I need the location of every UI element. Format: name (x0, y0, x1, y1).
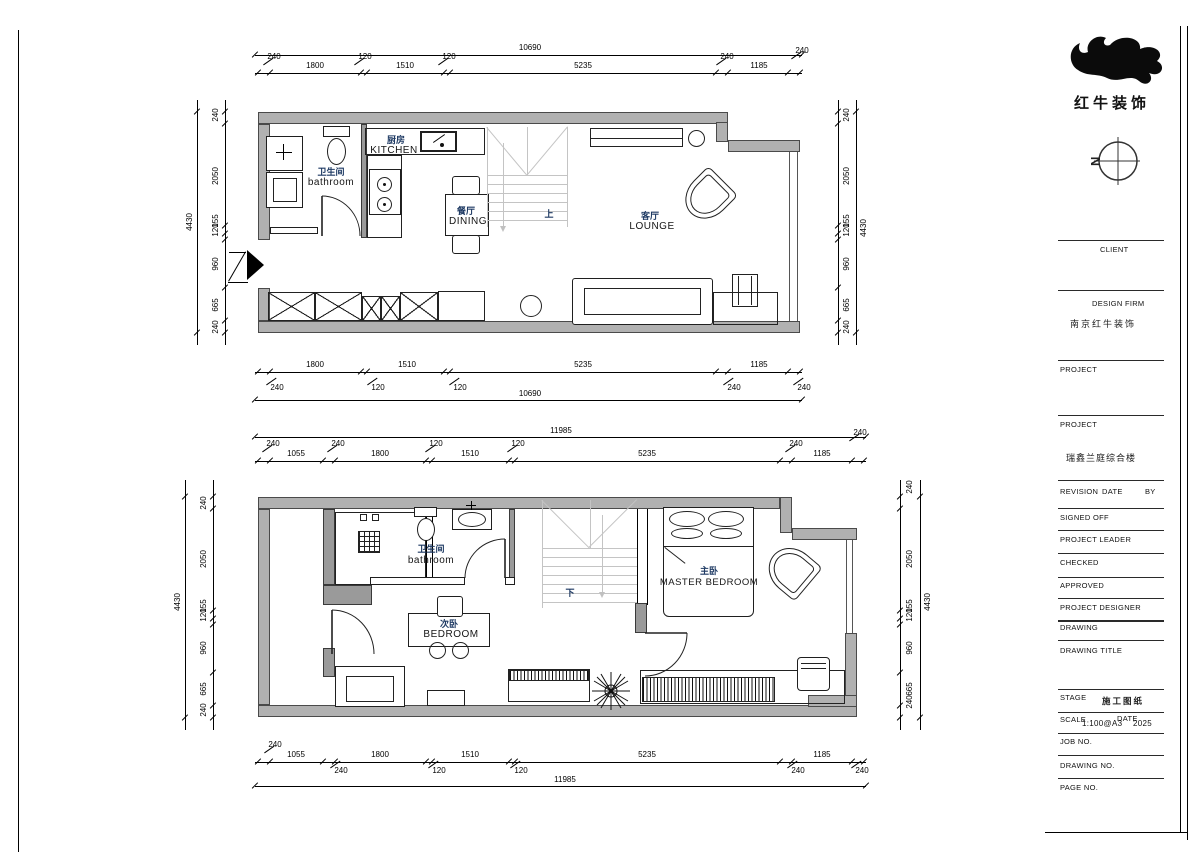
dim-line (900, 480, 901, 730)
window-line (852, 540, 853, 633)
faucet-icon (276, 152, 292, 153)
dim-label: 10690 (519, 44, 541, 52)
cabinet-unit (381, 296, 400, 321)
divider (1058, 553, 1164, 554)
divider (1058, 530, 1164, 531)
by-label: BY (1145, 488, 1156, 496)
drawing-title-label: DRAWING TITLE (1060, 647, 1122, 655)
dim-label: 960 (200, 641, 208, 654)
wall-line (637, 509, 638, 605)
dim-label: 1185 (813, 450, 830, 458)
dim-label: 120 (371, 384, 384, 392)
dim-label: 665 (200, 682, 208, 695)
divider (1058, 480, 1164, 481)
project-designer-label: PROJECT DESIGNER (1060, 604, 1141, 612)
dim-label: 120 (442, 53, 455, 61)
blanket-line (664, 546, 753, 547)
job-no-label: JOB NO. (1060, 738, 1092, 746)
drawing-label: DRAWING (1060, 624, 1098, 632)
project-leader-label: PROJECT LEADER (1060, 536, 1131, 544)
stairs-treads (542, 548, 637, 608)
shelf-box (372, 514, 379, 521)
wardrobe-unit (268, 292, 315, 321)
window-line (846, 540, 847, 633)
divider (1058, 733, 1164, 734)
dim-label: 1800 (371, 450, 389, 458)
wall-stub (370, 577, 465, 585)
washing-machine-drum (273, 178, 297, 202)
dim-label: 240 (331, 440, 344, 448)
wardrobe-unit (315, 292, 362, 321)
dim-label: 240 (266, 440, 279, 448)
door-arc (330, 608, 374, 656)
toilet (414, 507, 437, 517)
stool (732, 274, 758, 307)
room-label-master-en: MASTER BEDROOM (660, 578, 758, 588)
toilet (323, 126, 350, 137)
dim-label: 240 (267, 53, 280, 61)
dim-label: 1510 (396, 62, 414, 70)
pillow (671, 528, 703, 539)
stairs-arrow-head (599, 592, 605, 598)
toilet-bowl (327, 138, 346, 165)
dim-tick (863, 782, 869, 788)
vanity (266, 136, 303, 171)
dim-label: 240 (268, 741, 281, 749)
dim-line (255, 437, 866, 438)
wall-block (323, 585, 372, 605)
page-no-label: PAGE NO. (1060, 784, 1098, 792)
project-label: PROJECT (1060, 366, 1097, 374)
dim-label: 1800 (306, 361, 324, 369)
divider (1058, 240, 1164, 241)
room-label-bathroom-en: bathroom (408, 556, 454, 566)
toilet-bowl (417, 518, 435, 541)
design-firm-label: DESIGN FIRM (1092, 300, 1144, 308)
stairs-diagonal (486, 127, 527, 176)
room-label-bathroom-cn: 卫生间 (317, 168, 344, 177)
wall-line (647, 509, 648, 605)
dim-label: 4430 (186, 213, 194, 231)
dim-label: 2050 (843, 167, 851, 185)
dim-label: 960 (843, 257, 851, 270)
date-label: DATE (1102, 488, 1123, 496)
door-arc (463, 537, 507, 580)
dim-tick (861, 457, 867, 463)
dim-line (255, 372, 802, 373)
room-label-lounge-cn: 客厅 (641, 212, 659, 221)
dim-label: 2050 (906, 550, 914, 568)
signed-off-label: SIGNED OFF (1060, 514, 1109, 522)
dim-label: 4430 (924, 593, 932, 611)
wall (716, 122, 728, 142)
stairs-label-down: 下 (565, 589, 574, 598)
revision-label: REVISION (1060, 488, 1098, 496)
kitchen-sink (420, 131, 457, 152)
divider (1058, 689, 1164, 690)
dim-label: 1185 (750, 62, 767, 70)
burner-dot (383, 203, 386, 206)
dim-label: 120 (358, 53, 371, 61)
stool-round (452, 642, 469, 659)
round-stool (688, 130, 705, 147)
dim-label: 120 (453, 384, 466, 392)
dim-label: 240 (906, 480, 914, 493)
stairs-treads (487, 175, 568, 228)
dim-label: 2050 (212, 167, 220, 185)
window-line (797, 152, 798, 321)
wall (792, 528, 857, 540)
washbasin-bowl (458, 512, 486, 527)
divider (1058, 415, 1164, 416)
pillow (669, 511, 705, 527)
dim-label: 240 (334, 767, 347, 775)
door-arc (320, 194, 360, 237)
wall-partition (509, 509, 515, 585)
drawing-sheet: 卫生间 bathroom 厨房 KITCHEN 餐厅 DINING 上 (0, 0, 1200, 852)
titleblock-border-inner (1180, 26, 1181, 832)
dim-label: 240 (791, 767, 804, 775)
pillow (708, 511, 744, 527)
dim-label: 1185 (813, 751, 830, 759)
north-compass-icon: N (1086, 134, 1144, 188)
dim-label: 11985 (554, 776, 576, 784)
plant-icon (590, 670, 632, 712)
dim-label: 5235 (574, 62, 592, 70)
sofa-seat (584, 288, 701, 315)
divider (1058, 577, 1164, 578)
dim-label: 240 (906, 695, 914, 708)
dim-label: 120 (429, 440, 442, 448)
dim-line (856, 100, 857, 345)
dim-label: 960 (212, 257, 220, 270)
stairs-arrow-head (500, 226, 506, 232)
window-line (789, 152, 790, 321)
stage-label: STAGE (1060, 694, 1086, 702)
round-table (520, 295, 542, 317)
checked-label: CHECKED (1060, 559, 1099, 567)
cabinet (438, 291, 485, 321)
dim-tick (797, 368, 803, 374)
wall (258, 509, 270, 705)
room-label-dining-en: DINING (449, 217, 487, 227)
stage-value: 施工图纸 (1102, 697, 1144, 706)
wardrobe-unit (400, 292, 438, 321)
dim-label: 240 (270, 384, 283, 392)
stairs-arrow (503, 143, 504, 227)
wall (258, 112, 728, 124)
dim-label: 1510 (461, 751, 479, 759)
sheet-border-right (1187, 26, 1188, 840)
sheet-border-left (18, 30, 19, 852)
wall (780, 497, 792, 533)
wall (728, 140, 800, 152)
divider (1058, 290, 1164, 291)
project-label: PROJECT (1060, 421, 1097, 429)
dim-label: 960 (906, 641, 914, 654)
dim-label: 10690 (519, 390, 541, 398)
dim-tick (861, 758, 867, 764)
dim-label: 4430 (860, 219, 868, 237)
dim-label: 240 (797, 384, 810, 392)
armchair-seat (346, 676, 394, 702)
room-label-bathroom-en: bathroom (308, 178, 354, 188)
dining-chair (452, 176, 480, 195)
stairs-center-line (590, 500, 591, 548)
approved-label: APPROVED (1060, 582, 1104, 590)
dim-label: 665 (906, 682, 914, 695)
room-label-bedroom-cn: 次卧 (440, 620, 458, 629)
dim-label: 240 (212, 108, 220, 121)
wall-stub (270, 227, 318, 234)
dim-label: 4430 (174, 593, 182, 611)
pillow (710, 528, 742, 539)
dim-line (213, 480, 214, 730)
divider (1058, 640, 1164, 641)
divider (1058, 360, 1164, 361)
stairs-center-line (527, 127, 528, 175)
entry-symbol (228, 251, 246, 281)
stool-line (738, 276, 739, 305)
dim-label: 1510 (461, 450, 479, 458)
wall-partition (323, 509, 335, 585)
room-label-kitchen-cn: 厨房 (387, 136, 405, 145)
divider (1058, 598, 1164, 599)
entry-arrow-icon (247, 250, 264, 280)
divider (1058, 620, 1164, 622)
dim-label: 1510 (398, 361, 416, 369)
dim-label: 240 (843, 108, 851, 121)
armchair (759, 538, 823, 601)
svg-text:N: N (1088, 157, 1103, 166)
stairs-label-up: 上 (544, 210, 553, 219)
client-label: CLIENT (1100, 246, 1128, 254)
chair-back-line (801, 663, 826, 664)
dim-line (255, 461, 866, 462)
titleblock-border-bottom (1045, 832, 1187, 833)
company-logo-icon (1064, 30, 1164, 90)
dim-line (185, 480, 186, 730)
room-label-bathroom-cn: 卫生间 (417, 545, 444, 554)
dim-label: 2050 (200, 550, 208, 568)
dim-label: 240 (200, 703, 208, 716)
laundry-room-outline (335, 512, 426, 585)
dim-label: 240 (789, 440, 802, 448)
dim-label: 120 (906, 608, 914, 621)
desk-chair (437, 596, 463, 617)
dim-label: 665 (843, 298, 851, 311)
dim-label: 1055 (287, 751, 305, 759)
dim-line (255, 73, 802, 74)
entry-symbol (228, 282, 248, 283)
wall-notch (427, 690, 465, 706)
dim-tick (797, 69, 803, 75)
tv-cabinet-line (590, 138, 683, 139)
armchair (676, 166, 738, 228)
bench-keys (509, 670, 589, 681)
dim-label: 1055 (287, 450, 305, 458)
dim-label: 240 (855, 767, 868, 775)
room-label-lounge-en: LOUNGE (629, 222, 674, 232)
dining-chair (452, 235, 480, 254)
dim-label: 120 (514, 767, 527, 775)
sink-drain (440, 143, 444, 147)
dim-label: 240 (843, 320, 851, 333)
dim-line (255, 400, 802, 401)
stool-line (751, 276, 752, 305)
radiator-cabinet (642, 677, 775, 702)
faucet-icon (283, 144, 284, 160)
stairs-diagonal (527, 126, 568, 175)
dim-line (255, 762, 866, 763)
dim-line (255, 786, 866, 787)
dim-label: 5235 (638, 450, 656, 458)
project-value: 瑞鑫兰庭综合楼 (1066, 454, 1136, 463)
dim-label: 1800 (306, 62, 324, 70)
dim-line (920, 480, 921, 730)
room-label-master-cn: 主卧 (700, 567, 718, 576)
dim-label: 240 (212, 320, 220, 333)
divider (1058, 778, 1164, 779)
divider (1058, 508, 1164, 509)
room-label-bedroom-en: BEDROOM (423, 630, 478, 640)
dim-label: 5235 (574, 361, 592, 369)
dim-label: 665 (212, 298, 220, 311)
cabinet-unit (362, 296, 381, 321)
room-label-dining-cn: 餐厅 (457, 207, 475, 216)
faucet-icon (471, 501, 472, 510)
dim-label: 120 (511, 440, 524, 448)
dim-label: 11985 (550, 427, 572, 435)
shelf-box (360, 514, 367, 521)
dim-label: 240 (200, 496, 208, 509)
dim-label: 1185 (750, 361, 767, 369)
divider (1058, 712, 1164, 713)
dim-label: 120 (200, 608, 208, 621)
divider (1058, 755, 1164, 756)
dim-tick (799, 396, 805, 402)
company-name: 红牛装饰 (1056, 92, 1168, 113)
dim-label: 240 (720, 53, 733, 61)
dim-label: 120 (843, 223, 851, 236)
dim-label: 120 (212, 223, 220, 236)
burner-dot (383, 183, 386, 186)
dim-label: 1800 (371, 751, 389, 759)
stool-round (429, 642, 446, 659)
dim-line (197, 100, 198, 345)
dim-label: 5235 (638, 751, 656, 759)
chair-back-line (801, 668, 826, 669)
drawing-no-label: DRAWING NO. (1060, 762, 1115, 770)
dim-label: 120 (432, 767, 445, 775)
date-value: 2025 (1133, 720, 1152, 728)
design-firm-value: 南京红牛装饰 (1070, 320, 1136, 329)
washing-machine-icon (358, 531, 380, 553)
stairs-arrow (602, 515, 603, 593)
dim-label: 240 (727, 384, 740, 392)
